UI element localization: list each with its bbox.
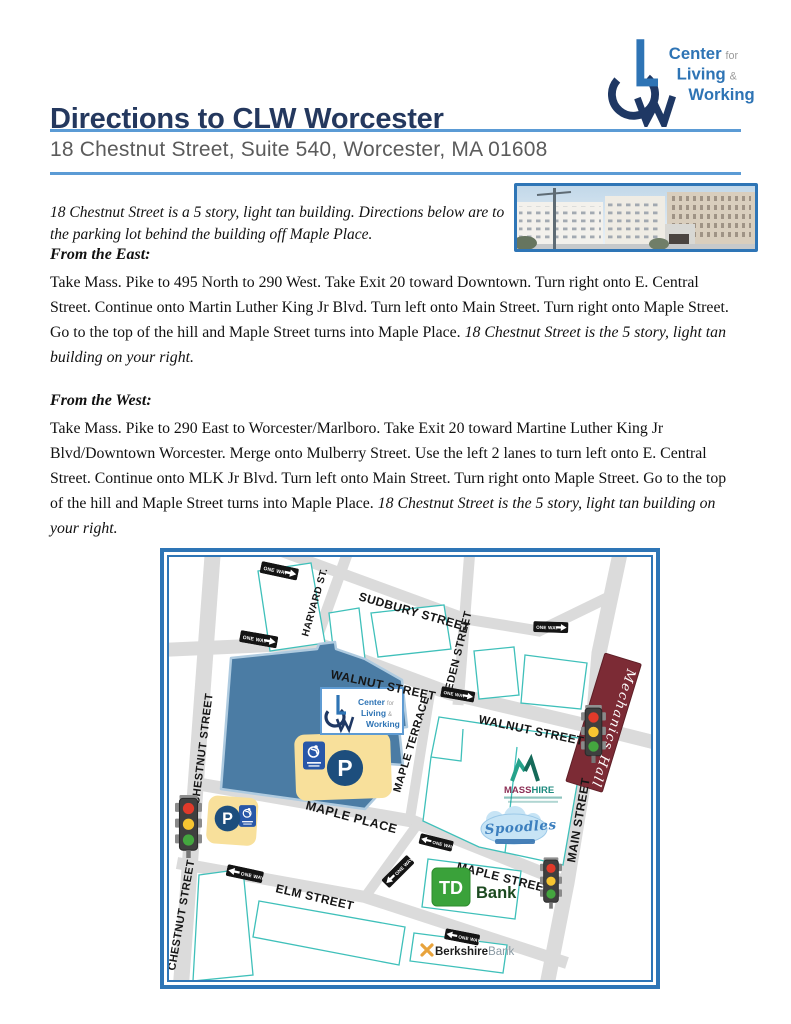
map: ONE WAY ONE WAY <box>167 555 653 982</box>
divider-bottom <box>50 172 741 175</box>
intro-note: 18 Chestnut Street is a 5 story, light t… <box>50 202 520 246</box>
svg-text:BerkshireBank: BerkshireBank <box>435 946 515 958</box>
building-photo <box>514 183 758 252</box>
svg-text:Bank: Bank <box>476 884 517 902</box>
clw-map-logo: Centerfor Living& Working <box>321 688 403 734</box>
svg-text:TD: TD <box>439 878 463 898</box>
handicap-parking-sign <box>303 742 325 770</box>
logo-word-center: Centerfor <box>669 44 739 63</box>
berkshire-bank-logo: BerkshireBank <box>422 945 515 958</box>
clw-logo: Centerfor Living& Working <box>608 33 760 127</box>
logo-word-living: Living& <box>677 65 738 84</box>
section-heading-east: From the East: <box>50 246 738 264</box>
address-subtitle: 18 Chestnut Street, Suite 540, Worcester… <box>50 138 548 162</box>
building-block <box>253 901 405 965</box>
section-body-east: Take Mass. Pike to 495 North to 290 West… <box>50 270 738 370</box>
street-map: ONE WAY ONE WAY <box>169 557 651 980</box>
section-from-the-east: From the East: Take Mass. Pike to 495 No… <box>50 246 738 370</box>
parking-marker <box>327 750 363 786</box>
parking-marker <box>215 806 241 832</box>
divider-top <box>50 129 741 132</box>
building-photo-illustration <box>517 186 755 249</box>
section-heading-west: From the West: <box>50 392 738 410</box>
building-block <box>474 647 519 699</box>
building-block <box>521 655 587 709</box>
logo-word-working: Working <box>688 85 754 104</box>
svg-text:Working: Working <box>366 719 400 729</box>
section-body-west: Take Mass. Pike to 290 East to Worcester… <box>50 416 738 541</box>
svg-text:MASSHIRE: MASSHIRE <box>504 785 554 796</box>
directions-document-page: Directions to CLW Worcester Centerfor Li… <box>0 0 791 1024</box>
section-from-the-west: From the West: Take Mass. Pike to 290 Ea… <box>50 392 738 541</box>
building-block <box>193 869 253 980</box>
map-frame: ONE WAY ONE WAY <box>160 548 660 989</box>
handicap-parking-sign <box>239 805 256 827</box>
clw-monogram-icon <box>608 39 673 124</box>
one-way-sign-icon <box>533 621 568 633</box>
